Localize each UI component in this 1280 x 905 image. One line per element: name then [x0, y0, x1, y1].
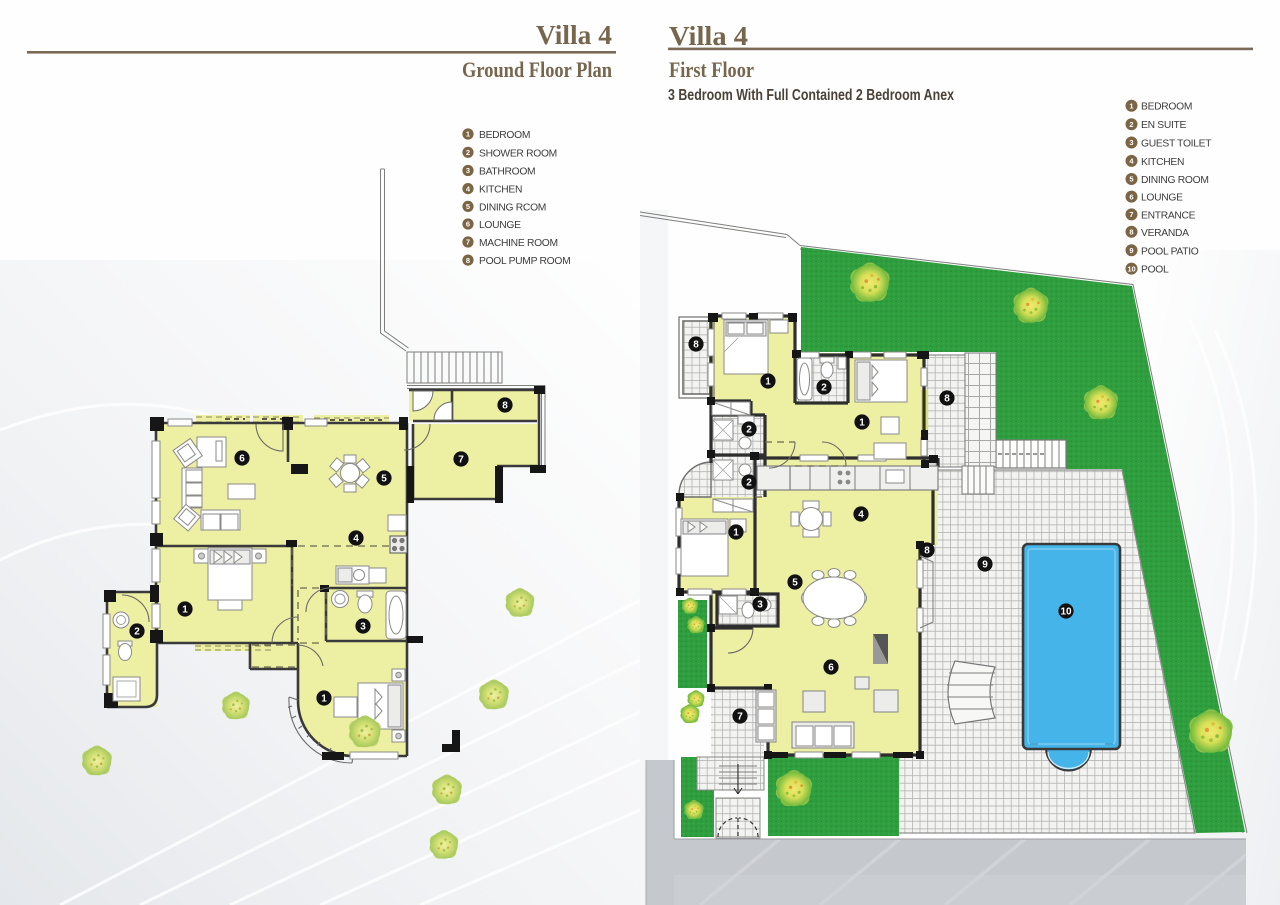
svg-text:6: 6 — [828, 663, 834, 674]
svg-text:7: 7 — [458, 455, 464, 466]
svg-text:LOUNGE: LOUNGE — [1141, 193, 1183, 204]
svg-text:5: 5 — [381, 474, 387, 485]
svg-text:BEDROOM: BEDROOM — [479, 130, 530, 141]
svg-text:2: 2 — [1129, 120, 1133, 129]
svg-text:KITCHEN: KITCHEN — [1141, 157, 1184, 168]
svg-text:SHOWER ROOM: SHOWER ROOM — [479, 148, 557, 159]
svg-text:8: 8 — [693, 340, 699, 351]
svg-text:1: 1 — [1129, 101, 1133, 110]
svg-text:1: 1 — [733, 528, 739, 539]
svg-text:VERANDA: VERANDA — [1141, 228, 1189, 239]
svg-text:2: 2 — [466, 148, 470, 157]
svg-text:First Floor: First Floor — [669, 57, 754, 82]
svg-text:9: 9 — [982, 560, 988, 571]
svg-text:KITCHEN: KITCHEN — [479, 185, 522, 196]
svg-text:2: 2 — [134, 627, 140, 638]
svg-text:1: 1 — [859, 418, 865, 429]
svg-text:8: 8 — [944, 394, 950, 405]
svg-text:5: 5 — [792, 578, 798, 589]
svg-text:POOL PATIO: POOL PATIO — [1141, 246, 1199, 257]
svg-text:7: 7 — [466, 238, 470, 247]
svg-text:3 Bedroom With Full Contained: 3 Bedroom With Full Contained 2 Bedroom … — [668, 87, 954, 104]
svg-text:MACHINE ROOM: MACHINE ROOM — [479, 238, 558, 249]
svg-text:2: 2 — [821, 383, 827, 394]
svg-text:6: 6 — [1129, 192, 1133, 201]
svg-text:POOL PUMP ROOM: POOL PUMP ROOM — [479, 256, 570, 267]
svg-text:Villa 4: Villa 4 — [536, 20, 612, 50]
svg-text:Villa 4: Villa 4 — [669, 21, 748, 51]
svg-text:DINING ROOM: DINING ROOM — [1141, 175, 1209, 186]
svg-text:9: 9 — [1129, 246, 1133, 255]
svg-text:10: 10 — [1060, 607, 1072, 618]
svg-text:3: 3 — [1129, 138, 1133, 147]
svg-text:1: 1 — [321, 694, 327, 705]
svg-text:BATHROOM: BATHROOM — [479, 167, 535, 178]
svg-text:4: 4 — [353, 534, 359, 545]
svg-text:6: 6 — [239, 454, 245, 465]
svg-text:1: 1 — [182, 605, 188, 616]
svg-text:2: 2 — [746, 425, 752, 436]
svg-text:2: 2 — [746, 478, 752, 489]
svg-text:DINING RCOM: DINING RCOM — [479, 202, 546, 213]
svg-text:7: 7 — [1129, 210, 1133, 219]
svg-text:5: 5 — [1129, 175, 1133, 184]
svg-text:4: 4 — [858, 510, 864, 521]
svg-text:POOL: POOL — [1141, 265, 1169, 276]
svg-text:8: 8 — [924, 546, 930, 557]
svg-text:3: 3 — [757, 600, 763, 611]
svg-text:Ground Floor Plan: Ground Floor Plan — [462, 57, 612, 82]
svg-text:1: 1 — [466, 130, 470, 139]
svg-text:BEDROOM: BEDROOM — [1141, 102, 1192, 113]
svg-text:EN SUITE: EN SUITE — [1141, 120, 1187, 131]
svg-text:ENTRANCE: ENTRANCE — [1141, 210, 1196, 221]
svg-text:6: 6 — [466, 220, 470, 229]
svg-text:10: 10 — [1127, 264, 1135, 273]
svg-text:GUEST TOILET: GUEST TOILET — [1141, 139, 1212, 150]
svg-text:3: 3 — [466, 166, 470, 175]
svg-text:LOUNGE: LOUNGE — [479, 220, 521, 231]
svg-text:1: 1 — [765, 377, 771, 388]
svg-text:8: 8 — [502, 401, 508, 412]
svg-text:8: 8 — [466, 256, 470, 265]
svg-text:5: 5 — [466, 202, 470, 211]
svg-text:8: 8 — [1129, 228, 1133, 237]
svg-text:7: 7 — [737, 712, 743, 723]
svg-text:3: 3 — [360, 622, 366, 633]
